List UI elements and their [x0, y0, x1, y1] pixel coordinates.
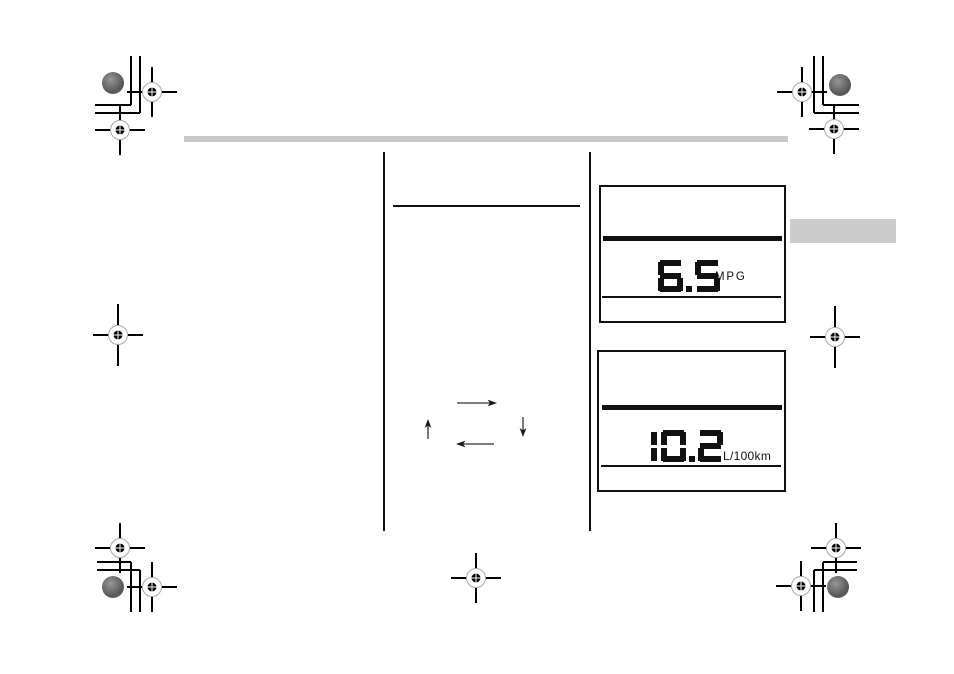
- fuel-economy-value-mpg: [658, 260, 723, 292]
- registration-target-icon: [95, 105, 145, 155]
- registration-target-icon: [93, 304, 143, 366]
- fuel-display-mpg-figure: MPG: [599, 185, 786, 323]
- registration-target-icon: [809, 104, 859, 154]
- ink-density-patch: [102, 72, 124, 94]
- page-header-rule: [184, 136, 788, 142]
- crop-mark-line: [823, 561, 857, 563]
- fuel-economy-value-l100km: [648, 430, 726, 462]
- registration-target-icon: [127, 562, 177, 612]
- display-top-bar: [602, 405, 782, 410]
- column-divider-left: [383, 152, 385, 531]
- cycle-arrow-left-icon: [455, 439, 495, 449]
- registration-target-icon: [810, 306, 860, 368]
- fuel-display-l100km-figure: L/100km: [597, 350, 786, 492]
- registration-target-icon: [451, 553, 501, 603]
- ink-density-patch: [102, 576, 124, 598]
- display-baseline-rule: [601, 465, 781, 467]
- display-baseline-rule: [602, 296, 781, 298]
- manual-page: MPG L/100km: [0, 0, 954, 674]
- cycle-arrow-right-icon: [456, 398, 498, 408]
- fuel-economy-unit-mpg: MPG: [715, 271, 747, 283]
- ink-density-patch: [829, 74, 851, 96]
- crop-mark-line: [97, 561, 131, 563]
- display-top-bar: [603, 236, 782, 241]
- registration-target-icon: [776, 561, 826, 611]
- section-rule: [393, 205, 580, 207]
- cycle-arrow-up-icon: [423, 418, 433, 440]
- ink-density-patch: [827, 576, 849, 598]
- column-divider-right: [589, 152, 591, 531]
- cycle-arrow-down-icon: [518, 416, 528, 438]
- fuel-economy-unit-l100km: L/100km: [723, 449, 771, 463]
- chapter-edge-tab: [790, 219, 896, 243]
